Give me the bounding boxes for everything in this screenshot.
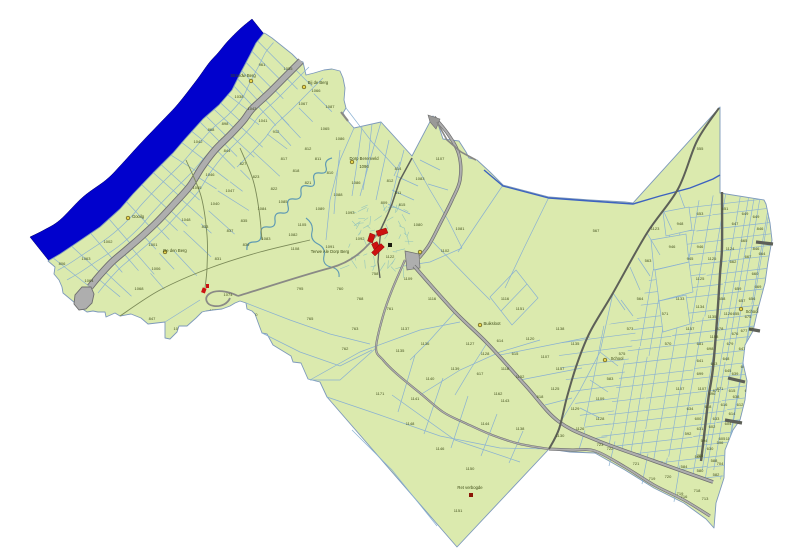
svg-text:1107: 1107 xyxy=(676,386,685,391)
svg-text:584: 584 xyxy=(681,464,688,469)
svg-text:592: 592 xyxy=(685,431,692,436)
svg-text:1043: 1043 xyxy=(248,106,258,111)
svg-text:795: 795 xyxy=(297,286,304,291)
svg-text:573: 573 xyxy=(627,326,634,331)
svg-text:912: 912 xyxy=(273,129,280,134)
svg-text:660: 660 xyxy=(752,271,759,276)
svg-text:827: 827 xyxy=(240,161,247,166)
svg-text:1134: 1134 xyxy=(696,304,705,309)
svg-text:School: School xyxy=(611,356,624,361)
svg-text:1122: 1122 xyxy=(386,254,395,259)
svg-text:667: 667 xyxy=(745,254,752,259)
svg-text:1126: 1126 xyxy=(724,311,733,316)
svg-text:1158: 1158 xyxy=(710,334,719,339)
svg-text:719: 719 xyxy=(649,476,656,481)
svg-text:1123: 1123 xyxy=(651,226,660,231)
svg-text:814: 814 xyxy=(395,166,402,171)
svg-text:1151: 1151 xyxy=(516,306,525,311)
svg-text:1141: 1141 xyxy=(411,396,420,401)
svg-text:818: 818 xyxy=(293,168,300,173)
svg-text:614: 614 xyxy=(729,411,736,416)
svg-text:1086: 1086 xyxy=(336,136,346,141)
svg-text:657: 657 xyxy=(739,298,746,303)
svg-text:648: 648 xyxy=(723,356,730,361)
svg-text:1084: 1084 xyxy=(258,206,268,211)
svg-text:1139: 1139 xyxy=(451,366,460,371)
svg-text:1135: 1135 xyxy=(396,348,405,353)
svg-text:1109: 1109 xyxy=(596,396,605,401)
svg-text:844: 844 xyxy=(224,148,231,153)
svg-text:1157: 1157 xyxy=(686,326,695,331)
svg-text:946: 946 xyxy=(669,244,676,249)
svg-text:639: 639 xyxy=(732,371,739,376)
svg-text:720: 720 xyxy=(665,474,672,479)
svg-text:1107: 1107 xyxy=(541,354,550,359)
svg-text:Bij de Berg: Bij de Berg xyxy=(308,80,329,85)
svg-text:1140: 1140 xyxy=(426,376,435,381)
svg-text:1151: 1151 xyxy=(454,508,463,513)
svg-text:1042: 1042 xyxy=(194,139,204,144)
svg-text:1067: 1067 xyxy=(299,101,309,106)
svg-text:1135: 1135 xyxy=(708,314,717,319)
svg-text:1105: 1105 xyxy=(298,222,307,227)
svg-text:641: 641 xyxy=(697,358,704,363)
svg-text:653: 653 xyxy=(697,211,704,216)
svg-text:871: 871 xyxy=(713,388,720,393)
svg-text:1102: 1102 xyxy=(441,248,450,253)
svg-text:718: 718 xyxy=(694,488,701,493)
svg-text:570: 570 xyxy=(665,341,672,346)
svg-text:723: 723 xyxy=(597,442,604,447)
svg-text:812: 812 xyxy=(387,178,394,183)
svg-text:678: 678 xyxy=(717,326,724,331)
svg-text:1118: 1118 xyxy=(501,366,510,371)
svg-text:604: 604 xyxy=(725,421,732,426)
svg-text:961: 961 xyxy=(259,62,266,67)
svg-text:811: 811 xyxy=(395,190,402,195)
svg-text:817: 817 xyxy=(281,156,288,161)
svg-text:868: 868 xyxy=(208,127,215,132)
svg-text:596: 596 xyxy=(717,440,724,445)
svg-text:634: 634 xyxy=(687,406,694,411)
svg-text:812: 812 xyxy=(305,146,312,151)
svg-text:588: 588 xyxy=(711,458,718,463)
svg-text:765: 765 xyxy=(307,316,314,321)
svg-text:583: 583 xyxy=(607,376,614,381)
svg-text:1126: 1126 xyxy=(576,426,585,431)
svg-text:1086: 1086 xyxy=(352,180,362,185)
svg-text:649: 649 xyxy=(753,214,760,219)
svg-text:615: 615 xyxy=(512,351,519,356)
svg-text:647: 647 xyxy=(732,221,739,226)
svg-text:1162: 1162 xyxy=(494,391,503,396)
svg-text:1063: 1063 xyxy=(82,256,92,261)
svg-text:1133: 1133 xyxy=(676,296,685,301)
svg-text:555: 555 xyxy=(697,146,704,151)
svg-text:1074: 1074 xyxy=(224,292,234,297)
svg-text:719: 719 xyxy=(677,491,684,496)
svg-text:1001: 1001 xyxy=(149,242,159,247)
svg-text:1135: 1135 xyxy=(571,341,580,346)
svg-text:713: 713 xyxy=(702,496,709,501)
svg-text:1107: 1107 xyxy=(436,156,445,161)
svg-text:1081: 1081 xyxy=(456,226,466,231)
svg-text:822: 822 xyxy=(271,186,278,191)
svg-text:675: 675 xyxy=(745,314,752,319)
svg-text:1137: 1137 xyxy=(401,326,410,331)
svg-text:1152: 1152 xyxy=(516,374,525,379)
svg-text:1085: 1085 xyxy=(279,199,289,204)
svg-text:Strandw Berg: Strandw Berg xyxy=(230,73,256,78)
svg-text:1136: 1136 xyxy=(421,341,430,346)
svg-text:698: 698 xyxy=(707,346,714,351)
svg-text:1047: 1047 xyxy=(226,188,236,193)
svg-text:630: 630 xyxy=(707,446,714,451)
svg-text:1116: 1116 xyxy=(428,296,437,301)
svg-text:1006: 1006 xyxy=(152,266,162,271)
svg-text:580: 580 xyxy=(697,468,704,473)
svg-text:1083: 1083 xyxy=(262,236,272,241)
svg-text:567: 567 xyxy=(593,228,600,233)
svg-text:699: 699 xyxy=(697,371,704,376)
svg-text:758: 758 xyxy=(372,271,379,276)
svg-text:564: 564 xyxy=(637,296,644,301)
svg-text:617: 617 xyxy=(477,371,484,376)
svg-text:837: 837 xyxy=(227,228,234,233)
svg-text:1146: 1146 xyxy=(436,446,445,451)
svg-text:582: 582 xyxy=(713,472,720,477)
svg-text:763: 763 xyxy=(352,326,359,331)
svg-text:1144: 1144 xyxy=(481,421,490,426)
svg-text:655: 655 xyxy=(733,311,740,316)
svg-text:656: 656 xyxy=(749,296,756,301)
svg-text:722: 722 xyxy=(607,446,614,451)
svg-text:1065: 1065 xyxy=(321,126,331,131)
svg-text:1089: 1089 xyxy=(316,206,326,211)
svg-text:1128: 1128 xyxy=(596,416,605,421)
svg-text:659: 659 xyxy=(735,286,742,291)
svg-text:704: 704 xyxy=(717,461,724,466)
svg-text:662: 662 xyxy=(730,259,737,264)
svg-text:1087: 1087 xyxy=(326,104,336,109)
svg-text:594: 594 xyxy=(701,438,708,443)
svg-text:898: 898 xyxy=(222,121,229,126)
svg-text:760: 760 xyxy=(337,286,344,291)
svg-text:762: 762 xyxy=(342,346,349,351)
svg-text:721: 721 xyxy=(633,461,640,466)
svg-text:586: 586 xyxy=(695,454,702,459)
svg-text:563: 563 xyxy=(645,258,652,263)
svg-text:De den Berg: De den Berg xyxy=(163,248,187,253)
svg-text:831: 831 xyxy=(215,256,222,261)
svg-text:1068: 1068 xyxy=(135,286,145,291)
svg-text:616: 616 xyxy=(721,402,728,407)
svg-text:600: 600 xyxy=(695,416,702,421)
svg-text:638: 638 xyxy=(733,394,740,399)
svg-text:1108: 1108 xyxy=(291,246,300,251)
svg-text:602: 602 xyxy=(709,424,716,429)
svg-text:846: 846 xyxy=(757,226,764,231)
svg-text:618: 618 xyxy=(537,394,544,399)
svg-text:946: 946 xyxy=(697,244,704,249)
svg-text:633: 633 xyxy=(713,416,720,421)
svg-text:658: 658 xyxy=(719,296,726,301)
svg-text:821: 821 xyxy=(305,180,312,185)
svg-text:618: 618 xyxy=(705,404,712,409)
svg-text:1066: 1066 xyxy=(312,88,322,93)
svg-text:1107: 1107 xyxy=(698,386,707,391)
svg-text:1092: 1092 xyxy=(356,236,366,241)
svg-text:823: 823 xyxy=(253,174,260,179)
svg-text:Dorp Berenveld: Dorp Berenveld xyxy=(349,156,379,161)
svg-text:614: 614 xyxy=(497,338,504,343)
svg-text:651: 651 xyxy=(722,206,729,211)
svg-text:847: 847 xyxy=(149,316,156,321)
svg-text:1138: 1138 xyxy=(556,326,565,331)
svg-text:815: 815 xyxy=(399,202,406,207)
svg-text:1064: 1064 xyxy=(85,278,95,283)
svg-text:681: 681 xyxy=(697,341,704,346)
svg-text:1048: 1048 xyxy=(182,217,192,222)
svg-text:1127: 1127 xyxy=(466,341,475,346)
svg-text:1116: 1116 xyxy=(501,296,510,301)
svg-text:677: 677 xyxy=(741,328,748,333)
svg-text:612: 612 xyxy=(737,402,744,407)
svg-text:Buiksloot: Buiksloot xyxy=(484,321,502,326)
svg-text:806: 806 xyxy=(59,261,66,266)
svg-text:1150: 1150 xyxy=(466,466,475,471)
svg-text:669: 669 xyxy=(755,284,762,289)
svg-text:1080: 1080 xyxy=(414,222,424,227)
svg-text:1046: 1046 xyxy=(206,172,216,177)
svg-text:1129: 1129 xyxy=(571,406,580,411)
svg-text:1109: 1109 xyxy=(404,276,413,281)
svg-text:811: 811 xyxy=(315,156,322,161)
svg-text:679: 679 xyxy=(727,341,734,346)
svg-text:945: 945 xyxy=(687,256,694,261)
svg-text:948: 948 xyxy=(677,221,684,226)
svg-text:1171: 1171 xyxy=(376,391,385,396)
svg-text:1038: 1038 xyxy=(235,94,245,99)
svg-text:1125: 1125 xyxy=(551,386,560,391)
svg-text:631: 631 xyxy=(697,426,704,431)
svg-text:1041: 1041 xyxy=(259,118,269,123)
svg-text:615: 615 xyxy=(729,388,736,393)
svg-text:1125: 1125 xyxy=(696,276,705,281)
svg-text:1157: 1157 xyxy=(556,366,565,371)
svg-text:1083: 1083 xyxy=(416,176,426,181)
svg-text:643: 643 xyxy=(711,361,718,366)
svg-text:665: 665 xyxy=(741,238,748,243)
svg-text:839: 839 xyxy=(243,242,250,247)
svg-text:1148: 1148 xyxy=(406,421,415,426)
svg-text:1138: 1138 xyxy=(516,426,525,431)
svg-text:761: 761 xyxy=(387,306,394,311)
svg-text:809: 809 xyxy=(381,200,388,205)
svg-text:School: School xyxy=(746,309,759,314)
svg-text:810: 810 xyxy=(327,170,334,175)
svg-text:1143: 1143 xyxy=(501,398,510,403)
svg-text:1093: 1093 xyxy=(346,210,356,215)
svg-text:645: 645 xyxy=(725,368,732,373)
svg-text:571: 571 xyxy=(662,311,669,316)
svg-text:1120: 1120 xyxy=(526,336,535,341)
svg-text:1002: 1002 xyxy=(104,239,114,244)
svg-text:1125: 1125 xyxy=(708,256,717,261)
svg-text:835: 835 xyxy=(241,218,248,223)
svg-text:1035: 1035 xyxy=(284,66,294,71)
svg-text:649: 649 xyxy=(742,211,749,216)
svg-text:1096: 1096 xyxy=(359,164,369,169)
svg-text:Terwe Ale Dorp Berg: Terwe Ale Dorp Berg xyxy=(311,249,350,254)
svg-text:1082: 1082 xyxy=(289,232,299,237)
svg-text:1045: 1045 xyxy=(193,185,203,190)
svg-text:1088: 1088 xyxy=(334,192,344,197)
svg-text:664: 664 xyxy=(759,251,766,256)
svg-text:833: 833 xyxy=(202,224,209,229)
svg-text:1128: 1128 xyxy=(481,351,490,356)
svg-text:1040: 1040 xyxy=(211,201,221,206)
svg-text:1124: 1124 xyxy=(726,246,735,251)
svg-text:1130: 1130 xyxy=(556,433,565,438)
svg-text:768: 768 xyxy=(357,296,364,301)
svg-text:676: 676 xyxy=(732,331,739,336)
svg-text:Gooilg: Gooilg xyxy=(132,214,145,219)
svg-text:Ret verbogde: Ret verbogde xyxy=(457,485,483,490)
